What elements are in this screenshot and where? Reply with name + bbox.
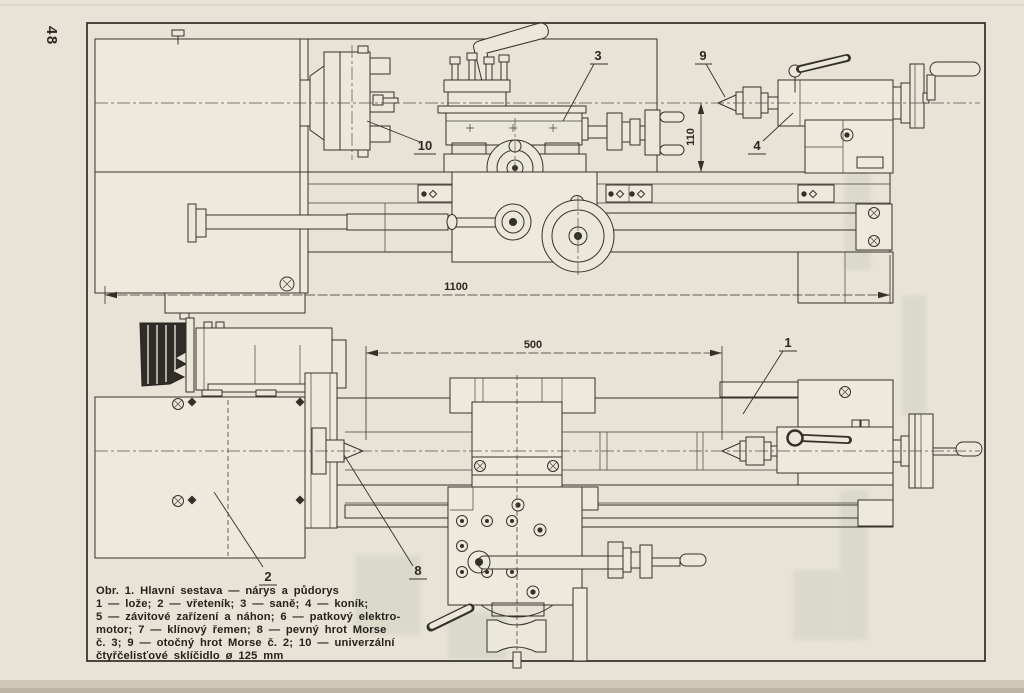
tailstock-crank-plan	[956, 442, 982, 456]
tailstock-crank	[930, 62, 980, 76]
tool-clamp-plate	[444, 80, 510, 92]
dim-110-label: 110	[685, 128, 697, 146]
scanned-book-page: 48	[0, 0, 1024, 693]
callout-2: 2	[264, 569, 271, 584]
callout-3: 3	[594, 48, 601, 63]
dim-500-label: 500	[524, 339, 542, 351]
cross-feed-crank-plan	[680, 554, 706, 566]
tailstock-base	[805, 120, 893, 173]
tailstock-handwheel	[910, 64, 924, 128]
scan-top-line	[0, 4, 1024, 6]
cabinet-foot	[165, 293, 305, 313]
callout-10: 10	[418, 138, 432, 153]
callout-1: 1	[784, 335, 791, 350]
caption-line-2: 1 — lože; 2 — vřeteník; 3 — saně; 4 — ko…	[96, 598, 368, 610]
caption-line-4: motor; 7 — klínový řemen; 8 — pevný hrot…	[96, 624, 387, 636]
scan-bottom-edge	[0, 688, 1024, 693]
dim-1100-label: 1100	[444, 281, 468, 293]
caption-line-6: čtyřčelisťové sklíčidlo ø 125 mm	[96, 650, 283, 662]
chuck-jaw	[370, 126, 390, 142]
cross-slide-pin	[478, 556, 630, 569]
chuck-jaw	[370, 58, 390, 74]
caption-line-3: 5 — závitové zařízení a náhon; 6 — patko…	[96, 611, 400, 623]
page-number: 48	[43, 26, 60, 46]
caption-line-1: Obr. 1. Hlavní sestava — nárys a půdorys	[96, 585, 339, 597]
cross-slide-plate	[448, 487, 582, 605]
chuck-key-socket	[373, 95, 383, 105]
headstock-cabinet-front	[95, 30, 308, 319]
caption-line-5: č. 3; 9 — otočný hrot Morse č. 2; 10 — u…	[96, 637, 395, 649]
callout-9: 9	[699, 48, 706, 63]
apron-front	[447, 172, 614, 278]
callout-4: 4	[753, 138, 761, 153]
belt-pulley	[140, 323, 186, 386]
apron-handwheel-plan	[487, 620, 546, 652]
callout-8: 8	[414, 563, 421, 578]
